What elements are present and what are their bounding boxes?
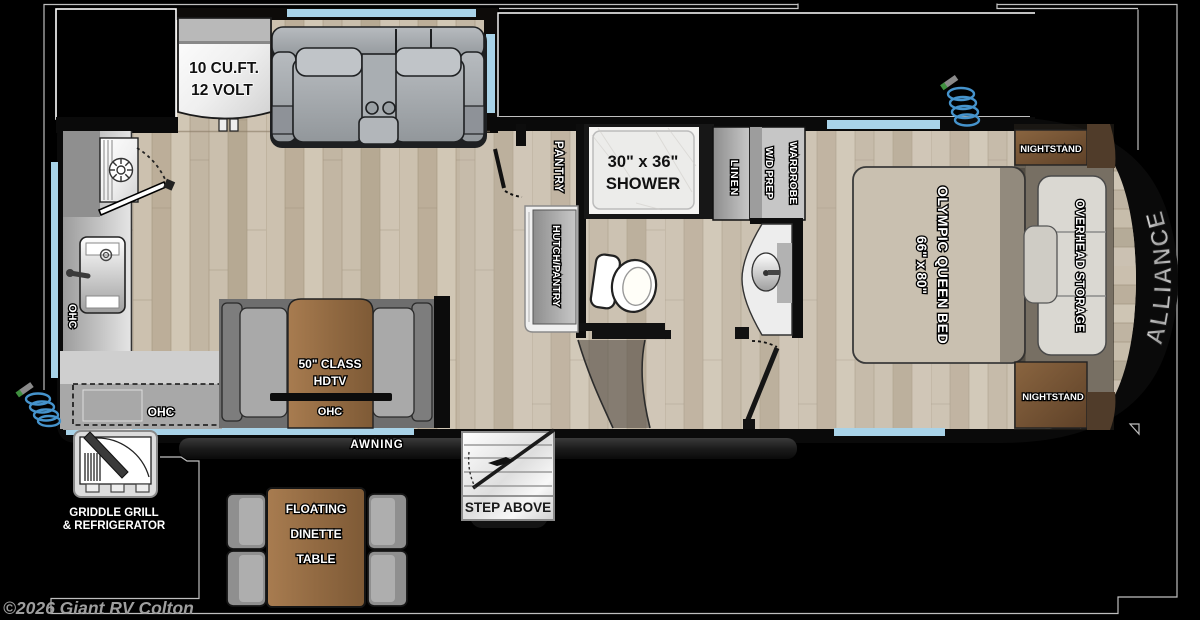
svg-text:PANTRY: PANTRY xyxy=(552,141,564,193)
svg-text:NIGHTSTAND: NIGHTSTAND xyxy=(1022,392,1084,403)
svg-text:©2026 Giant RV Colton: ©2026 Giant RV Colton xyxy=(3,598,194,618)
svg-text:66" x 80": 66" x 80" xyxy=(914,236,929,294)
svg-text:OVERHEAD STORAGE: OVERHEAD STORAGE xyxy=(1073,199,1085,332)
svg-text:HDTV: HDTV xyxy=(314,374,347,388)
svg-text:WARDROBE: WARDROBE xyxy=(787,142,799,204)
svg-text:HUTCH/PANTRY: HUTCH/PANTRY xyxy=(550,225,562,307)
svg-text:OHC: OHC xyxy=(148,405,175,419)
svg-text:FLOATING: FLOATING xyxy=(286,502,346,516)
svg-text:DINETTE: DINETTE xyxy=(290,527,341,541)
svg-text:NIGHTSTAND: NIGHTSTAND xyxy=(1020,144,1082,155)
svg-text:STEP ABOVE: STEP ABOVE xyxy=(465,500,551,515)
svg-text:W/D PREP: W/D PREP xyxy=(763,147,775,199)
svg-text:TABLE: TABLE xyxy=(296,552,335,566)
svg-text:30" x 36": 30" x 36" xyxy=(608,153,679,171)
svg-text:OHC: OHC xyxy=(318,406,343,418)
svg-text:SHOWER: SHOWER xyxy=(606,175,680,193)
svg-text:OHC: OHC xyxy=(66,304,78,329)
svg-text:LINEN: LINEN xyxy=(728,160,740,197)
svg-text:GRIDDLE GRILL: GRIDDLE GRILL xyxy=(69,507,158,519)
svg-text:10 CU.FT.: 10 CU.FT. xyxy=(189,60,259,77)
svg-text:OLYMPIC QUEEN BED: OLYMPIC QUEEN BED xyxy=(935,186,951,344)
svg-text:12 VOLT: 12 VOLT xyxy=(191,82,253,99)
svg-text:AWNING: AWNING xyxy=(350,439,403,451)
svg-text:& REFRIGERATOR: & REFRIGERATOR xyxy=(63,520,166,532)
svg-text:50" CLASS: 50" CLASS xyxy=(298,357,361,371)
